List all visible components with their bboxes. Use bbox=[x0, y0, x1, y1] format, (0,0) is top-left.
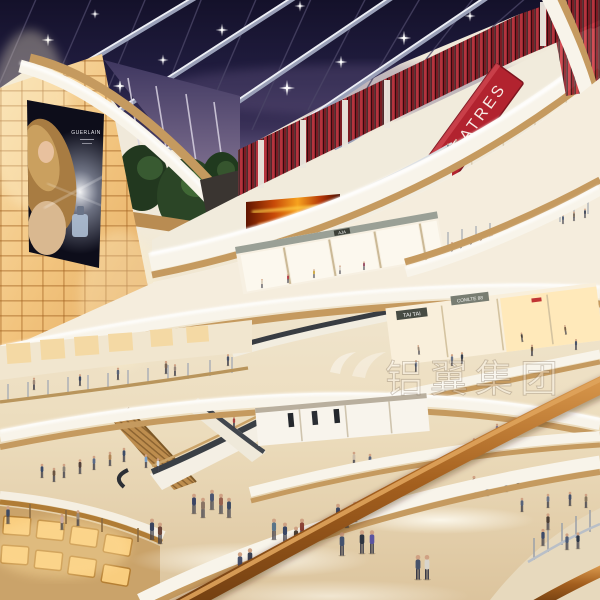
scene-canvas: GUERLAIN THEATRES bbox=[0, 0, 600, 600]
mall-atrium-rendering: GUERLAIN THEATRES bbox=[0, 0, 600, 600]
billboard-brand-text: GUERLAIN bbox=[71, 130, 101, 136]
watermark-text: 铝翼集团 bbox=[385, 357, 565, 401]
